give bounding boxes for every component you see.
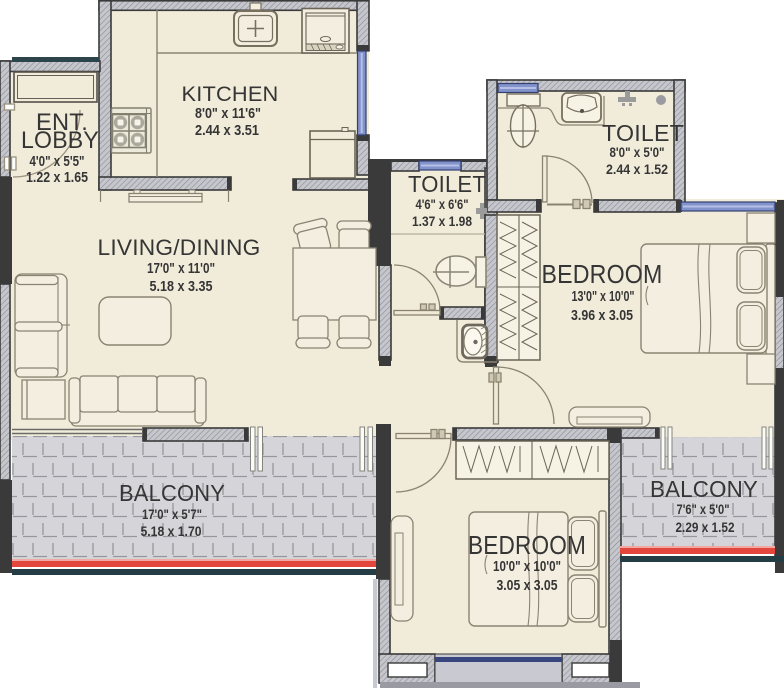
svg-text:8'0" x 11'6": 8'0" x 11'6" [195, 106, 261, 122]
svg-text:3.05 x 3.05: 3.05 x 3.05 [497, 578, 558, 594]
svg-text:2.44 x 3.51: 2.44 x 3.51 [195, 123, 259, 139]
svg-text:17'0" x 11'0": 17'0" x 11'0" [147, 261, 215, 277]
svg-text:LIVING/DINING: LIVING/DINING [98, 235, 261, 260]
svg-text:7'6" x 5'0": 7'6" x 5'0" [677, 501, 730, 517]
svg-text:TOILET: TOILET [408, 171, 486, 197]
svg-text:KITCHEN: KITCHEN [182, 82, 279, 106]
svg-text:BALCONY: BALCONY [119, 480, 225, 506]
svg-text:BALCONY: BALCONY [650, 476, 758, 502]
svg-text:3.96 x 3.05: 3.96 x 3.05 [571, 308, 633, 324]
svg-text:BEDROOM: BEDROOM [542, 259, 663, 289]
svg-text:1.37 x 1.98: 1.37 x 1.98 [412, 213, 472, 229]
svg-text:LOBBY: LOBBY [21, 127, 99, 154]
svg-text:10'0" x 10'0": 10'0" x 10'0" [493, 559, 561, 575]
svg-text:13'0" x 10'0": 13'0" x 10'0" [572, 289, 635, 305]
svg-text:1.22 x 1.65: 1.22 x 1.65 [26, 170, 88, 186]
svg-text:4'0" x 5'5": 4'0" x 5'5" [30, 154, 85, 170]
svg-text:4'6" x 6'6": 4'6" x 6'6" [416, 196, 469, 212]
svg-text:8'0" x 5'0": 8'0" x 5'0" [610, 144, 665, 160]
svg-text:5.18 x 1.70: 5.18 x 1.70 [141, 523, 202, 539]
svg-text:5.18 x 3.35: 5.18 x 3.35 [150, 279, 213, 295]
svg-text:TOILET: TOILET [602, 120, 684, 146]
svg-text:2.29 x 1.52: 2.29 x 1.52 [676, 519, 735, 535]
svg-text:17'0" x 5'7": 17'0" x 5'7" [142, 506, 202, 522]
svg-text:2.44 x 1.52: 2.44 x 1.52 [606, 161, 668, 177]
svg-text:BEDROOM: BEDROOM [468, 530, 586, 560]
